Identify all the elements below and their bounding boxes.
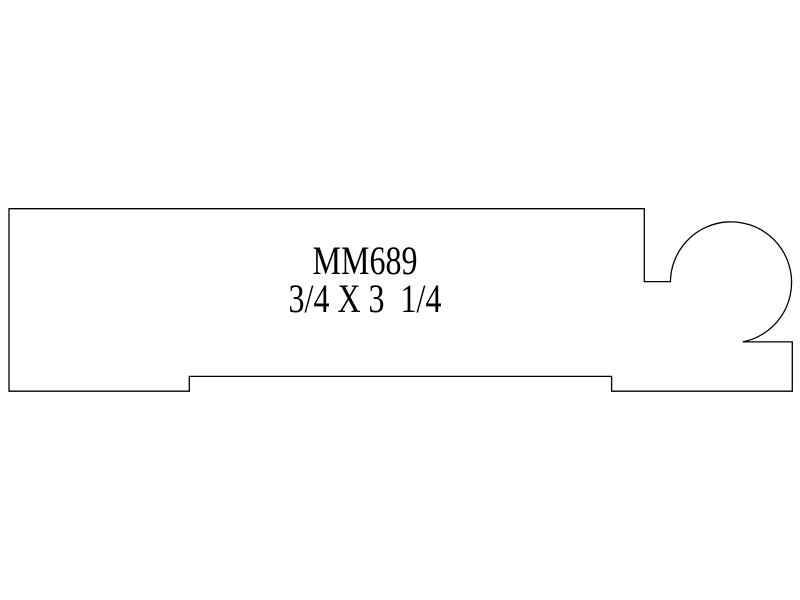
- drawing-canvas: MM689 3/4 X 3 1/4: [0, 0, 800, 600]
- drawing-labels: MM689 3/4 X 3 1/4: [205, 242, 525, 318]
- product-code-label: MM689: [205, 242, 525, 280]
- size-label: 3/4 X 3 1/4: [205, 280, 525, 318]
